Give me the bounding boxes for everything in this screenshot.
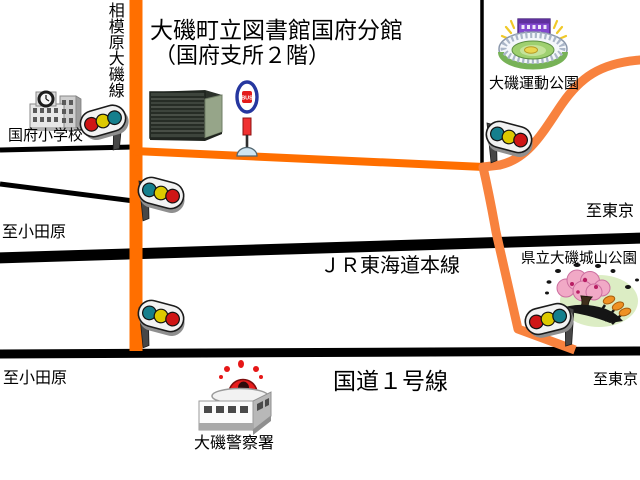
map-title-line2: （国府支所２階） xyxy=(154,44,330,67)
direction-label-to-odawara-lower: 至小田原 xyxy=(3,371,67,388)
road-label-sagamihara-oiso: 相模原大磯線 xyxy=(105,2,122,102)
stadium-icon xyxy=(499,19,567,67)
road-route1-line xyxy=(0,351,640,354)
bus-stop-icon: BUS xyxy=(237,82,257,156)
direction-label-to-tokyo-lower: 至東京 xyxy=(593,372,638,388)
railway-label-jr-tokaido: ＪＲ東海道本線 xyxy=(320,256,460,277)
direction-label-to-tokyo-upper: 至東京 xyxy=(586,204,634,221)
traffic-light-icon xyxy=(134,174,188,220)
bus-stop-sign-text: BUS xyxy=(241,96,253,102)
landmark-label-shiroyama-park: 県立大磯城山公園 xyxy=(521,252,637,267)
traffic-light-icon xyxy=(77,102,131,151)
library-building-icon xyxy=(150,90,222,141)
landmark-label-elementary-school: 国府小学校 xyxy=(8,128,83,144)
traffic-light-icon xyxy=(482,118,536,162)
map-title-line1: 大磯町立図書館国府分館 xyxy=(150,18,403,42)
road-orange-horizontal xyxy=(134,151,484,167)
side-road-lower-left xyxy=(0,184,134,201)
police-station-icon xyxy=(199,360,271,435)
school-icon xyxy=(28,92,81,131)
direction-label-to-odawara-upper: 至小田原 xyxy=(2,225,66,242)
road-label-route1: 国道１号線 xyxy=(333,369,448,393)
landmark-label-sports-park: 大磯運動公園 xyxy=(489,76,579,92)
map-canvas: BUS xyxy=(0,0,640,480)
traffic-light-icon xyxy=(134,297,188,347)
access-map: BUS xyxy=(0,0,640,480)
landmark-label-police-station: 大磯警察署 xyxy=(194,436,274,453)
